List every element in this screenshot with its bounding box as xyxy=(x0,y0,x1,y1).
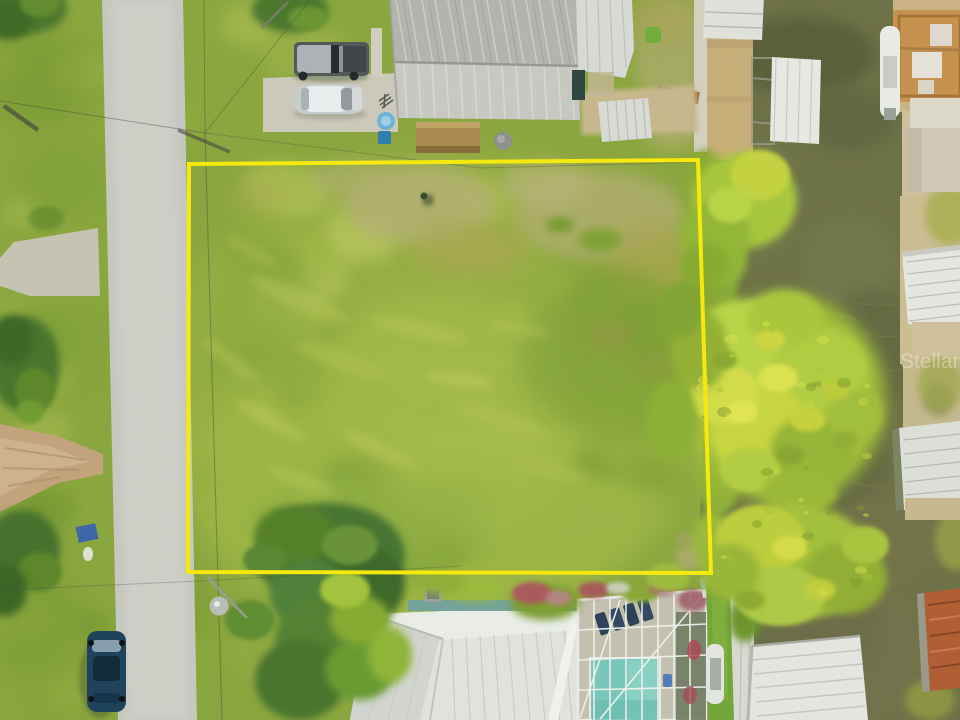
svg-text:Stellar MLS: Stellar MLS xyxy=(900,350,960,373)
